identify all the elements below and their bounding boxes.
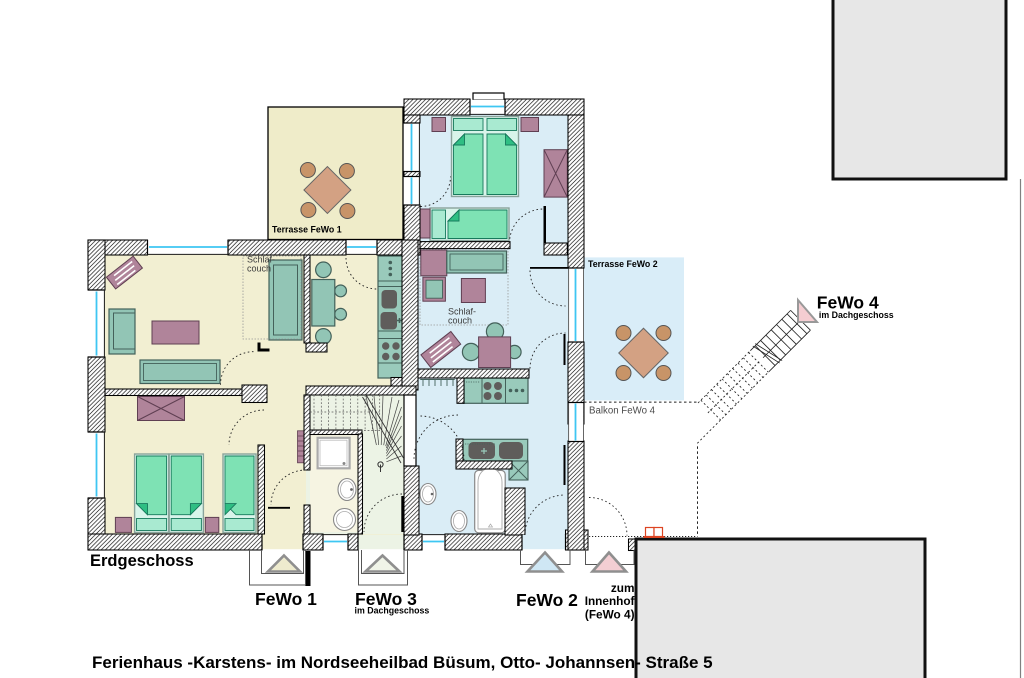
svg-text:im Dachgeschoss: im Dachgeschoss: [355, 606, 430, 616]
svg-text:(FeWo 4): (FeWo 4): [585, 607, 635, 621]
svg-text:zum: zum: [611, 581, 635, 595]
svg-text:couch: couch: [247, 264, 271, 274]
svg-text:Ferienhaus -Karstens- im Nord: Ferienhaus -Karstens- im Nordseeheilbad …: [92, 653, 713, 672]
svg-text:FeWo 2: FeWo 2: [516, 590, 578, 610]
svg-text:couch: couch: [448, 316, 472, 326]
svg-text:Erdgeschoss: Erdgeschoss: [90, 552, 194, 570]
svg-text:Terrasse FeWo 1: Terrasse FeWo 1: [272, 225, 342, 235]
svg-text:Balkon FeWo 4: Balkon FeWo 4: [589, 406, 656, 417]
svg-text:Innenhof: Innenhof: [585, 594, 635, 608]
svg-text:im Dachgeschoss: im Dachgeschoss: [819, 310, 894, 320]
svg-text:FeWo 1: FeWo 1: [255, 589, 317, 609]
svg-text:Terrasse FeWo 2: Terrasse FeWo 2: [588, 259, 658, 269]
